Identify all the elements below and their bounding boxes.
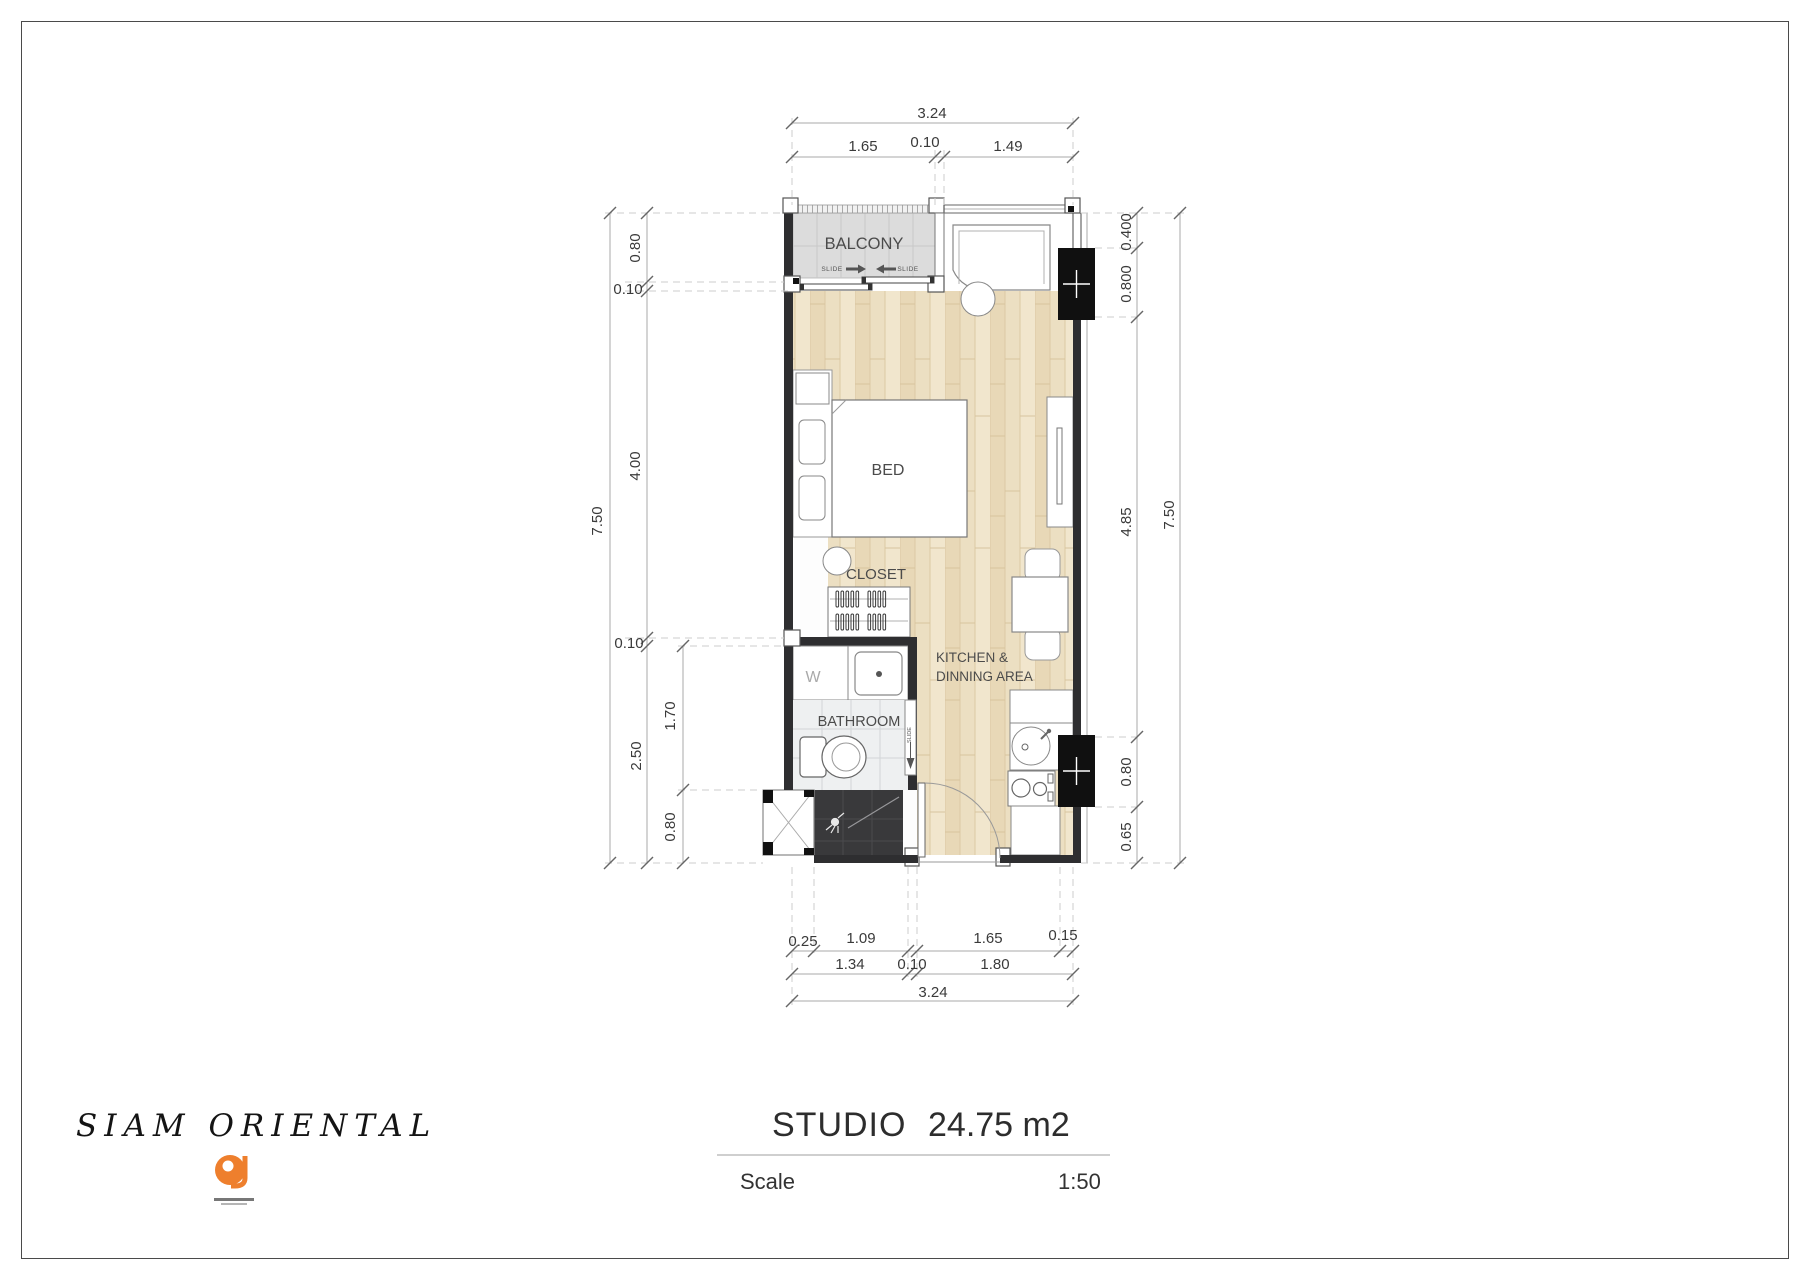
- dim: 1.65: [973, 930, 1002, 947]
- column: [1058, 735, 1095, 807]
- closet-hanger-unit: [828, 587, 910, 637]
- bathroom-partition-wall: [784, 637, 917, 646]
- dim: 0.65: [1118, 822, 1135, 851]
- slide-label: SLIDE: [907, 727, 913, 743]
- dim: 1.80: [980, 956, 1009, 973]
- dim: 4.00: [627, 451, 644, 480]
- dim: 2.50: [628, 741, 645, 770]
- balcony-sliding-door: [800, 277, 934, 290]
- chair: [1025, 628, 1060, 660]
- column: [1058, 248, 1095, 320]
- logo-icon: [211, 1153, 257, 1191]
- dim: 0.400: [1118, 213, 1135, 251]
- nightstand: [796, 373, 829, 404]
- pillow: [799, 420, 825, 464]
- dim: 1.09: [846, 930, 875, 947]
- closet-label: CLOSET: [846, 566, 906, 583]
- dim: 0.15: [1048, 927, 1077, 944]
- bed-label: BED: [872, 462, 905, 479]
- tv: [1057, 428, 1062, 504]
- bathroom-label: BATHROOM: [818, 714, 901, 730]
- kitchen-sink: [1012, 727, 1050, 765]
- dim: 0.80: [627, 233, 644, 262]
- vanity-sink: [848, 646, 908, 700]
- dim: 0.80: [1118, 757, 1135, 786]
- dim: 0.25: [788, 933, 817, 950]
- right-window: [1073, 213, 1081, 248]
- post-black-dot: [793, 278, 799, 284]
- post-black-dot: [1068, 206, 1074, 212]
- logo-subtext: [221, 1203, 247, 1205]
- kitchen-label-1: KITCHEN &: [936, 650, 1008, 665]
- bathroom-slide-door: SLIDE: [905, 700, 916, 775]
- scale-value: 1:50: [1058, 1169, 1101, 1195]
- logo-subtext: [214, 1198, 254, 1201]
- dim: 0.10: [614, 635, 643, 652]
- closet-zone-white: [793, 535, 828, 637]
- chair: [1025, 549, 1060, 581]
- sofa: [953, 225, 1050, 290]
- balcony-railing: [784, 205, 944, 213]
- unit-type-title: STUDIO: [772, 1106, 906, 1145]
- dim: 0.10: [613, 281, 642, 298]
- dim: 1.34: [835, 956, 864, 973]
- dining-table: [1012, 577, 1068, 632]
- toilet: [800, 736, 866, 778]
- pillow: [799, 476, 825, 520]
- tv-console: [1047, 397, 1073, 527]
- left-wall: [784, 205, 793, 790]
- dim: 1.49: [993, 138, 1022, 155]
- dim-right-total: 7.50: [1161, 500, 1178, 529]
- brand-logo: [204, 1153, 264, 1205]
- title-divider: [717, 1154, 1110, 1156]
- dim-bottom-total: 3.24: [918, 984, 947, 1001]
- side-table: [961, 282, 995, 316]
- dim-top-total: 3.24: [917, 105, 946, 122]
- brand-name: SIAM ORIENTAL: [76, 1108, 437, 1144]
- dim: 1.70: [662, 701, 679, 730]
- dim: 0.800: [1118, 265, 1135, 303]
- washer-label: W: [805, 669, 821, 686]
- shaft: [763, 790, 814, 855]
- floor-plan-svg: BED CLOSET KITCHEN & DINNING: [0, 0, 1810, 1280]
- unit-area: 24.75 m2: [928, 1106, 1070, 1145]
- kitchen-label-2: DINNING AREA: [936, 669, 1033, 684]
- dim: 0.10: [910, 134, 939, 151]
- slide-label: SLIDE: [897, 266, 918, 273]
- shower: [814, 790, 903, 855]
- dim: 1.65: [848, 138, 877, 155]
- slide-label: SLIDE: [821, 266, 842, 273]
- dim: 0.80: [662, 812, 679, 841]
- top-window: [944, 205, 1073, 213]
- scale-label: Scale: [740, 1169, 795, 1195]
- balcony-label: BALCONY: [825, 235, 904, 253]
- dim: 0.10: [897, 956, 926, 973]
- dim: 4.85: [1118, 507, 1135, 536]
- dim-left-total: 7.50: [589, 506, 606, 535]
